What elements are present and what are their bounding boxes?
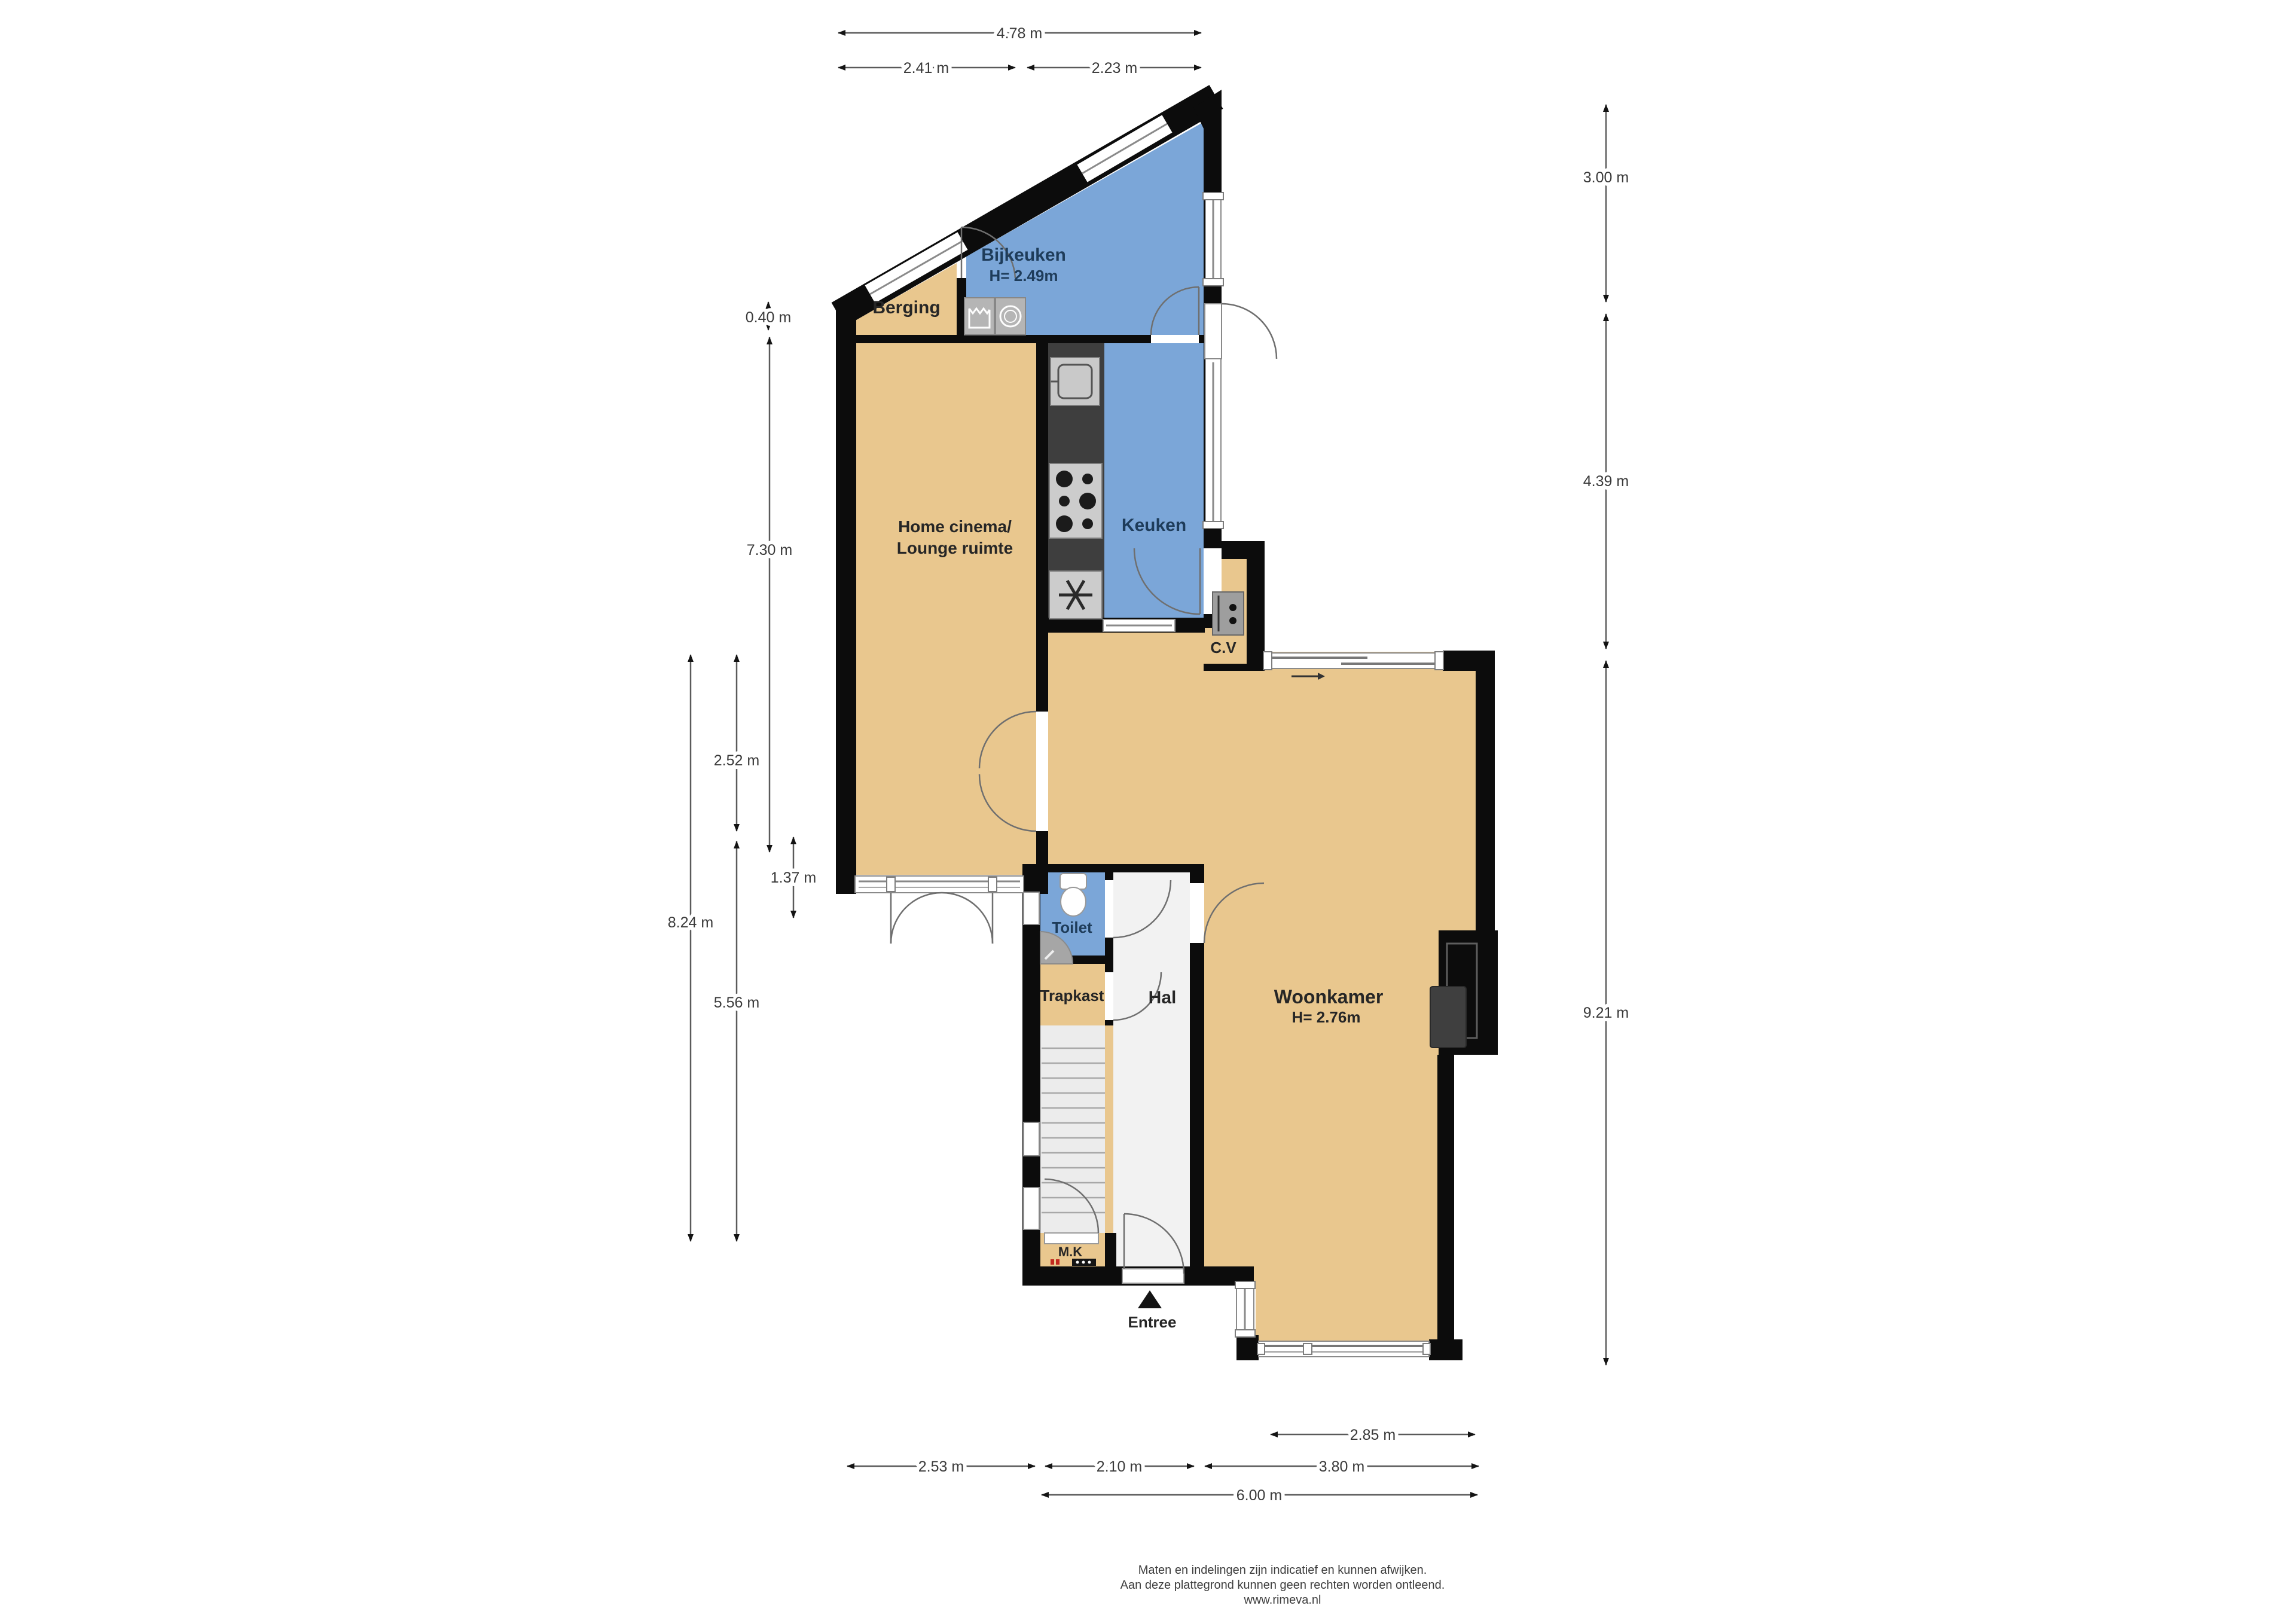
label-bijkeuken-height: H= 2.49m <box>990 267 1058 285</box>
footer-disclaimer-1: Maten en indelingen zijn indicatief en k… <box>1138 1564 1427 1577</box>
window-sliding-top <box>1265 653 1443 668</box>
stove-burners-icon <box>1049 463 1102 538</box>
wall-hc-bottom-left <box>836 875 856 894</box>
footer-website: www.rimeva.nl <box>1244 1594 1321 1607</box>
label-home-cinema-2: Lounge ruimte <box>897 539 1013 557</box>
washing-machine-icon <box>996 298 1025 335</box>
extractor-fan-icon <box>1049 571 1102 619</box>
footer: Maten en indelingen zijn indicatief en k… <box>1120 1564 1445 1607</box>
dim-top-241: 2.41 m <box>903 60 949 77</box>
wall-cv-right <box>1247 541 1265 671</box>
french-doors-homecinema <box>891 893 993 944</box>
label-woonkamer-height: H= 2.76m <box>1292 1008 1361 1026</box>
floors <box>856 122 1480 1349</box>
dim-bottom-285: 2.85 m <box>1350 1427 1396 1443</box>
label-home-cinema-1: Home cinema/ <box>898 517 1012 536</box>
window-stairs-left-1 <box>1024 1122 1039 1156</box>
wall-mk-jamb <box>1105 1233 1116 1268</box>
wall-bottom-right-corner <box>1429 1339 1463 1360</box>
label-trapkast: Trapkast <box>1040 987 1104 1005</box>
label-entree: Entree <box>1128 1313 1177 1331</box>
room-hal <box>1113 872 1190 1266</box>
label-berging: Berging <box>872 298 940 318</box>
dim-left-137: 1.37 m <box>771 869 816 886</box>
wall-berging-bottom <box>836 335 1204 343</box>
wall-right-woonkamer-upper <box>1476 651 1495 932</box>
dim-top-223: 2.23 m <box>1092 60 1137 77</box>
dim-left-040: 0.40 m <box>746 309 791 326</box>
door-hal-woonkamer <box>1190 883 1204 943</box>
toilet-bowl-icon <box>1060 874 1086 916</box>
outside-patch <box>1454 1052 1478 1348</box>
electrical-panel-icon <box>1072 1259 1096 1266</box>
laundry-tub-icon <box>964 298 994 335</box>
wall-right-woonkamer-lower <box>1437 1055 1454 1360</box>
dim-left-824: 8.24 m <box>668 914 713 931</box>
dim-bottom-210: 2.10 m <box>1097 1458 1142 1475</box>
door-trapkast <box>1105 972 1113 1020</box>
cv-boiler-icon <box>1213 592 1244 635</box>
label-woonkamer: Woonkamer <box>1274 986 1384 1008</box>
label-bijkeuken: Bijkeuken <box>981 245 1066 265</box>
dim-left-556: 5.56 m <box>714 994 759 1011</box>
wall-cv-bottom <box>1204 664 1265 671</box>
dim-left-730: 7.30 m <box>747 542 792 558</box>
dim-bottom-600: 6.00 m <box>1236 1487 1282 1504</box>
label-mk: M.K <box>1058 1244 1082 1259</box>
wall-toilet-top <box>1040 864 1190 872</box>
window-toilet-left <box>1024 892 1039 924</box>
label-toilet: Toilet <box>1052 918 1092 936</box>
label-cv: C.V <box>1210 639 1236 657</box>
door-front <box>1122 1269 1184 1283</box>
room-home-cinema <box>856 343 1036 875</box>
dim-bottom-380: 3.80 m <box>1319 1458 1364 1475</box>
door-mk <box>1045 1233 1098 1244</box>
room-keuken <box>1104 343 1204 618</box>
outside-patch <box>1265 622 1480 652</box>
dim-right-439: 4.39 m <box>1583 473 1629 490</box>
door-homecinema-woonkamer <box>1036 712 1048 831</box>
wall-left <box>836 302 856 875</box>
kitchen-sink-icon <box>1051 358 1100 405</box>
label-keuken: Keuken <box>1122 515 1186 535</box>
floorplan-page: Berging Bijkeuken H= 2.49m Home cinema/ … <box>0 0 2296 1624</box>
window-woonkamer-bottom <box>1259 1341 1429 1357</box>
window-homecinema-bottom <box>855 876 1024 893</box>
dim-right-300: 3.00 m <box>1583 169 1629 186</box>
label-hal: Hal <box>1149 988 1177 1008</box>
door-arc-exterior <box>1222 304 1277 359</box>
dim-right-921: 9.21 m <box>1583 1005 1629 1021</box>
wall-bottom-left-corner <box>1236 1335 1259 1360</box>
staircase-icon <box>1040 1025 1105 1233</box>
door-toilet <box>1105 880 1113 938</box>
wall-hc-bottom-right <box>1022 875 1048 894</box>
dim-left-252: 2.52 m <box>714 752 759 769</box>
footer-disclaimer-2: Aan deze plattegrond kunnen geen rechten… <box>1120 1579 1445 1592</box>
floorplan-canvas: Berging Bijkeuken H= 2.49m Home cinema/ … <box>0 0 2296 1624</box>
window-stairs-left-2 <box>1024 1188 1039 1229</box>
door-keuken-exterior <box>1205 304 1222 359</box>
dim-top-478: 4.78 m <box>997 25 1042 42</box>
door-bijkeuken-keuken <box>1151 335 1199 343</box>
dim-bottom-253: 2.53 m <box>918 1458 964 1475</box>
